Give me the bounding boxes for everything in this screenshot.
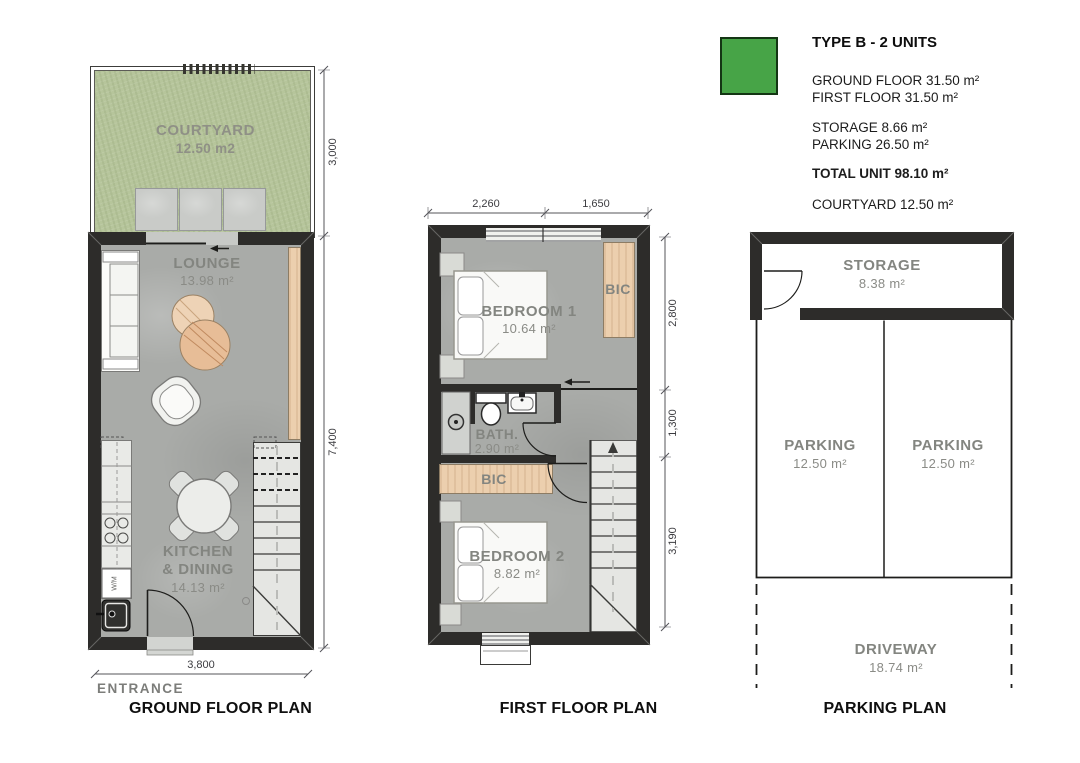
courtyard-area: 12.50 m2 (118, 141, 293, 156)
first-floor-plan-title: FIRST FLOOR PLAN (466, 700, 691, 718)
gf-stairs-floor (253, 442, 301, 636)
dim-top-2260: 2,260 (446, 198, 526, 210)
gf-sliding-door-opening (146, 232, 238, 245)
courtyard-paver (135, 188, 178, 231)
parking-right-label: PARKING (873, 437, 1023, 454)
ground-floor-plan-title: GROUND FLOOR PLAN (108, 700, 333, 718)
legend-storage: STORAGE 8.66 m² (812, 120, 927, 135)
parking-right-area: 12.50 m² (873, 456, 1023, 471)
bedroom2-area: 8.82 m² (442, 566, 592, 581)
ff-bottom-window (482, 633, 529, 645)
storage-area: 8.38 m² (807, 276, 957, 291)
dim-width-3800: 3,800 (161, 659, 241, 671)
bath-label: BATH. (447, 427, 547, 442)
washing-machine-label: W/M (112, 576, 119, 590)
storage-door (764, 271, 802, 309)
driveway-label: DRIVEWAY (821, 641, 971, 658)
lounge-area: 13.98 m² (132, 273, 282, 288)
ff-top-window (486, 228, 601, 242)
legend-color-swatch (720, 37, 778, 95)
bic-top-label: BIC (593, 281, 643, 297)
kitchen-area: 14.13 m² (123, 580, 273, 595)
legend-total-unit: TOTAL UNIT 98.10 m² (812, 166, 949, 181)
lounge-label: LOUNGE (132, 255, 282, 272)
legend-title: TYPE B - 2 UNITS (812, 34, 937, 51)
courtyard-paver (223, 188, 266, 231)
dim-right-2800: 2,800 (666, 283, 680, 343)
parking-plan-title: PARKING PLAN (775, 700, 995, 718)
dim-building-7400: 7,400 (326, 412, 340, 472)
bedroom1-label: BEDROOM 1 (454, 303, 604, 320)
gf-wall-cupboard (288, 247, 301, 440)
dim-right-1300: 1,300 (666, 393, 680, 453)
bedroom2-label: BEDROOM 2 (442, 548, 592, 565)
gf-entrance-opening (147, 637, 193, 650)
dim-top-1650: 1,650 (556, 198, 636, 210)
courtyard-fence (183, 64, 255, 74)
storage-label: STORAGE (807, 257, 957, 274)
bic-mid-label: BIC (444, 471, 544, 487)
legend-courtyard: COURTYARD 12.50 m² (812, 197, 953, 212)
dim-right-3190: 3,190 (666, 511, 680, 571)
floor-plan-sheet: TYPE B - 2 UNITS GROUND FLOOR 31.50 m² F… (0, 0, 1080, 763)
ff-stairs-floor (590, 440, 637, 632)
driveway-area: 18.74 m² (821, 660, 971, 675)
kitchen-label-line2: & DINING (123, 561, 273, 578)
storage-wall-left (750, 232, 762, 320)
ff-window-box (480, 645, 531, 665)
kitchen-label-line1: KITCHEN (123, 543, 273, 560)
storage-wall-top (750, 232, 1014, 244)
courtyard-paver (179, 188, 222, 231)
storage-wall-right (1002, 232, 1014, 320)
courtyard-label: COURTYARD (118, 122, 293, 139)
legend-first-floor: FIRST FLOOR 31.50 m² (812, 90, 958, 105)
legend-ground-floor: GROUND FLOOR 31.50 m² (812, 73, 979, 88)
dim-courtyard-3000: 3,000 (326, 122, 340, 182)
entrance-label: ENTRANCE (97, 681, 184, 696)
bath-area: 2.90 m² (447, 442, 547, 456)
bedroom1-area: 10.64 m² (454, 321, 604, 336)
legend-parking: PARKING 26.50 m² (812, 137, 929, 152)
storage-wall-bottom (800, 308, 1014, 320)
